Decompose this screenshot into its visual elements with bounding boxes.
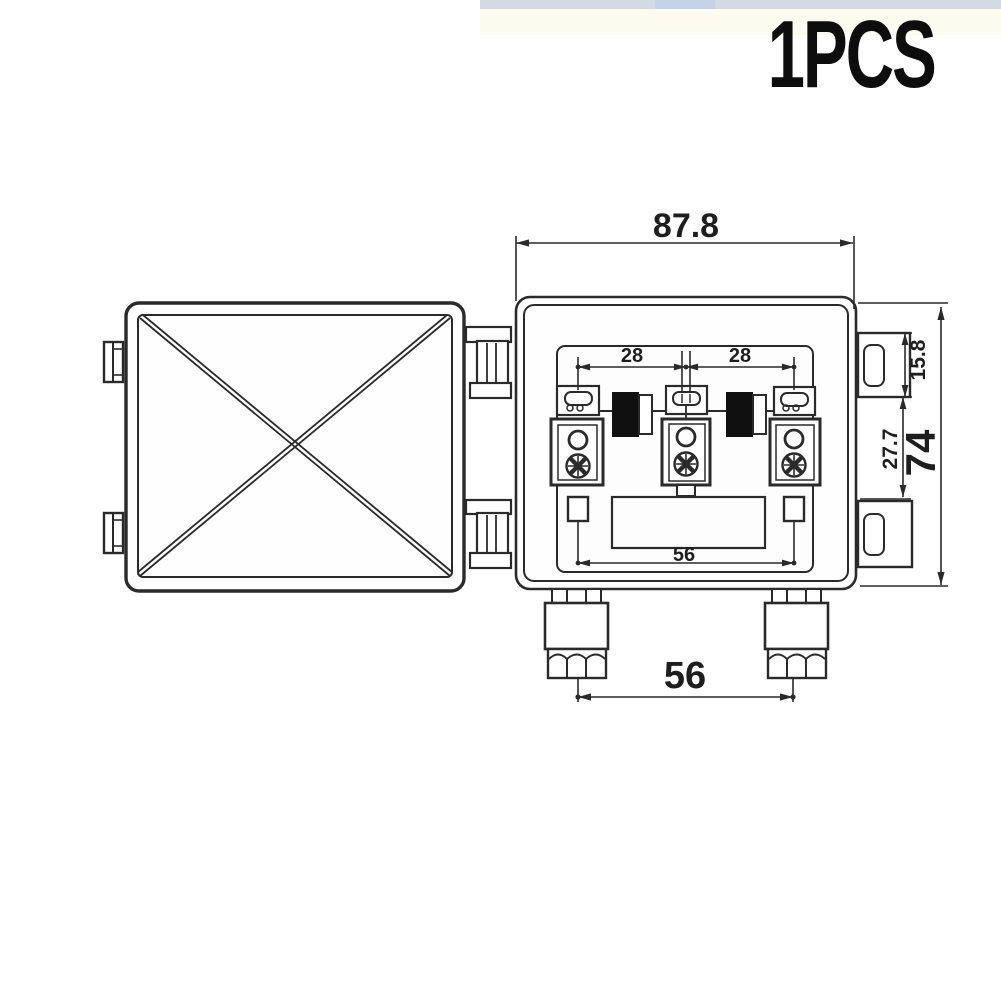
terminal-center (662, 386, 710, 496)
lid-latch-bottom (104, 513, 123, 553)
dim-label-overall-height: 74 (897, 429, 944, 476)
nameplate-recess (612, 497, 765, 548)
hinge-top (466, 327, 511, 398)
dim-label-flange-gap: 27.7 (879, 429, 902, 470)
dim-label-overall-width: 87.8 (653, 207, 719, 245)
dim-overall-width: 87.8 (516, 207, 854, 309)
screw-head (675, 453, 698, 476)
flange-bottom (858, 501, 912, 567)
lid-latch-top (104, 342, 123, 382)
base-view (516, 297, 912, 678)
dim-gland-span: 56 (575, 655, 795, 702)
dim-label-pitch-left: 28 (621, 345, 643, 367)
dim-label-flange-height: 15.8 (907, 339, 930, 380)
dim-label-gland-span: 56 (664, 655, 706, 697)
diode-right (726, 392, 766, 437)
terminal-stub (677, 485, 695, 496)
technical-drawing: 87.8 74 15.8 (0, 0, 1001, 1001)
cable-gland-right (765, 589, 828, 678)
lid-view (104, 303, 464, 591)
dim-label-terminal-span: 56 (673, 544, 695, 566)
terminal-foot (784, 497, 804, 521)
terminal-foot (568, 497, 588, 521)
flange-top (858, 333, 910, 397)
hinge-bottom (466, 500, 511, 568)
screw-head (567, 455, 590, 478)
dim-label-pitch-right: 28 (729, 345, 751, 367)
product-image: 1PCS (0, 0, 1001, 1001)
screw-head (783, 454, 806, 477)
dim-flange-gap: 27.7 (860, 397, 911, 499)
cable-gland-left (545, 589, 608, 678)
diode-left (612, 392, 652, 437)
